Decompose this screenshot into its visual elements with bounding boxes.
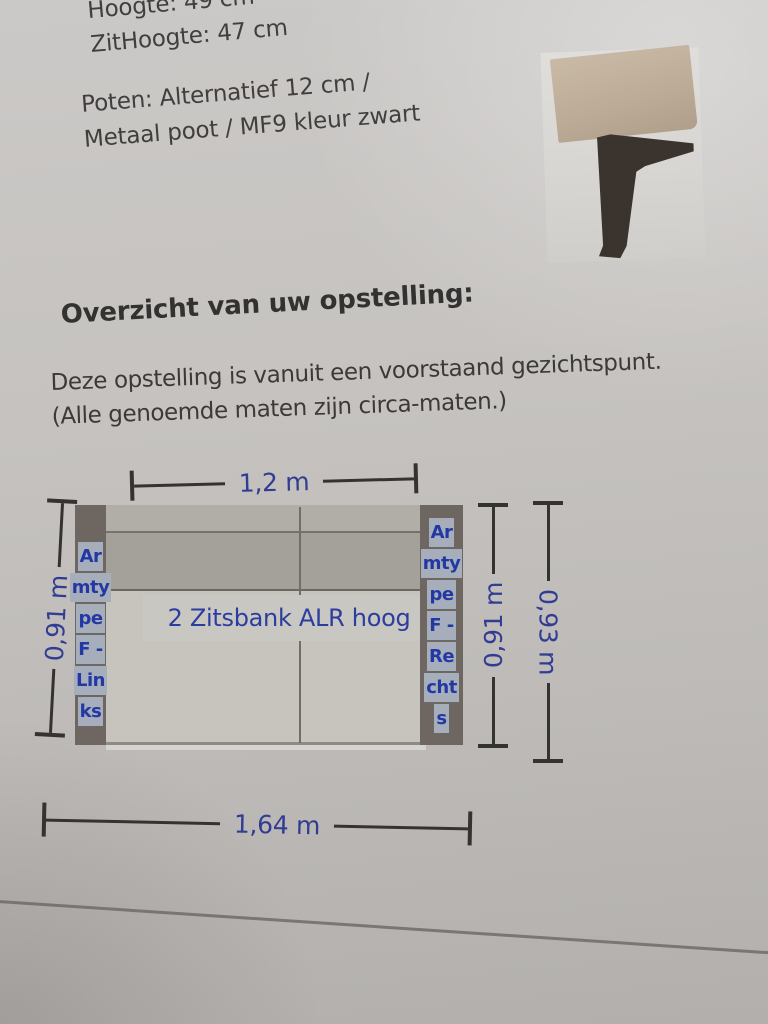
dimension-tick xyxy=(414,463,419,493)
description-paragraph: Deze opstelling is vanuit een voorstaand… xyxy=(50,345,663,434)
spec-text-block: Hoogte: 49 cm ZitHoogte: 47 cm xyxy=(86,0,289,62)
sofa-label-band: 2 Zitsbank ALR hoog xyxy=(143,595,435,641)
poten-text-block: Poten: Alternatief 12 cm / Metaal poot /… xyxy=(80,62,421,158)
armrest-right-line: pe xyxy=(427,580,455,609)
dimension-right-depth: 0,91 m xyxy=(475,503,511,748)
dimension-tick xyxy=(478,744,508,748)
armrest-left-line: Ar xyxy=(78,542,104,571)
armrest-left-line: ks xyxy=(78,697,104,726)
dimension-line xyxy=(134,482,225,487)
dimension-bottom-label: 1,64 m xyxy=(234,809,321,840)
dimension-tick xyxy=(468,811,473,845)
dimension-right-outer-label: 0,93 m xyxy=(534,589,563,675)
dimension-tick xyxy=(533,759,563,763)
photographed-document-page: Hoogte: 49 cm ZitHoogte: 47 cm Poten: Al… xyxy=(0,0,768,1024)
dimension-top-label: 1,2 m xyxy=(238,467,309,498)
sofa-backrest xyxy=(106,505,420,591)
dimension-left-depth: 0,91 m xyxy=(32,498,80,738)
dimension-tick xyxy=(35,732,65,738)
sofa-top-view: 2 Zitsbank ALR hoog Ar mty pe F - Lin ks… xyxy=(75,505,463,745)
armrest-left-line: Lin xyxy=(74,666,107,695)
armrest-right-line: F - xyxy=(427,611,456,640)
sofa-label-text: 2 Zitsbank ALR hoog xyxy=(168,604,411,632)
dimension-line xyxy=(46,818,220,825)
dimension-line xyxy=(334,824,468,830)
sofa-layout-diagram: 1,2 m 2 Zitsbank ALR hoog Ar mty pe F - xyxy=(30,455,630,875)
section-heading: Overzicht van uw opstelling: xyxy=(60,278,474,330)
metal-leg-shape xyxy=(581,124,698,260)
dimension-left-label: 0,91 m xyxy=(39,574,72,662)
dimension-line xyxy=(48,669,54,733)
sofa-backrest-top-edge xyxy=(106,505,420,533)
dimension-line xyxy=(492,677,495,744)
armrest-left: Ar mty pe F - Lin ks xyxy=(75,505,106,745)
armrest-left-line: pe xyxy=(76,604,104,633)
dimension-top-width: 1,2 m xyxy=(130,463,419,501)
dimension-bottom-width: 1,64 m xyxy=(42,803,473,846)
armrest-right-line: Re xyxy=(427,642,456,671)
dimension-right-total-depth: 0,93 m xyxy=(530,501,566,763)
armrest-right-line: cht xyxy=(424,673,459,702)
dimension-line xyxy=(547,505,550,581)
sofa-leg-photo xyxy=(540,47,705,262)
page-divider-line xyxy=(0,899,768,956)
dimension-line xyxy=(492,507,495,574)
armrest-right-line: s xyxy=(434,704,448,733)
sofa-corner-image xyxy=(550,45,698,143)
dimension-line xyxy=(323,477,414,482)
dimension-line xyxy=(57,503,63,567)
armrest-right-line: mty xyxy=(421,549,463,578)
dimension-line xyxy=(547,683,550,759)
dimension-right-inner-label: 0,91 m xyxy=(479,582,508,668)
armrest-right: Ar mty pe F - Re cht s xyxy=(420,505,463,745)
armrest-right-line: Ar xyxy=(429,518,455,547)
armrest-left-line: F - xyxy=(76,635,105,664)
sofa-body: 2 Zitsbank ALR hoog xyxy=(106,505,420,745)
